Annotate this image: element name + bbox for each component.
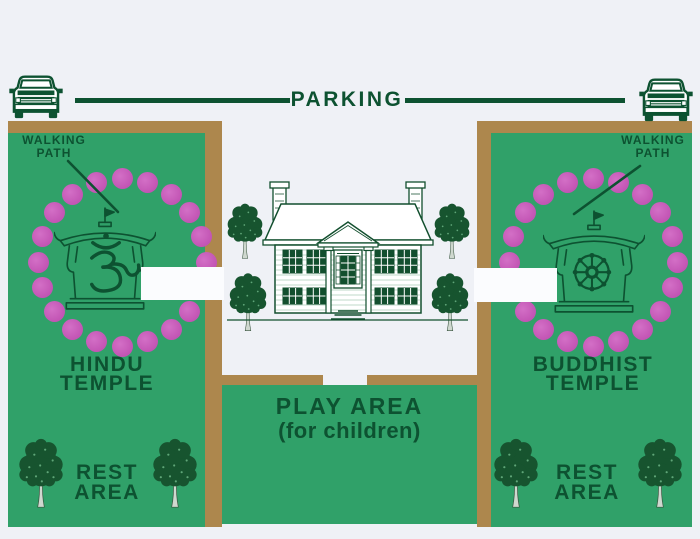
house-icon: [225, 180, 470, 325]
hindu-temple-title: HINDU TEMPLE: [27, 355, 187, 393]
play-area-subtitle: (for children): [222, 419, 477, 443]
car-icon: [638, 76, 694, 122]
car-icon: [8, 73, 64, 119]
parking-label: PARKING: [272, 88, 422, 112]
hindu-temple-access-path: [141, 267, 224, 300]
walking-path-label-line: PATH: [10, 147, 98, 160]
hindu-walking-path-label: WALKING PATH: [10, 134, 98, 160]
rest-area-line: REST: [517, 463, 657, 483]
hindu-rest-area-label: REST AREA: [37, 463, 177, 503]
parking-divider-left: [75, 98, 290, 103]
walking-path-label-line: PATH: [608, 147, 698, 160]
pointer-line: [68, 161, 118, 212]
play-area-title: PLAY AREA: [222, 394, 477, 419]
parking-divider-right: [405, 98, 625, 103]
pointer-line: [574, 166, 640, 214]
buddhist-walking-path-label: WALKING PATH: [608, 134, 698, 160]
zone-title-line: TEMPLE: [27, 374, 187, 393]
rest-area-line: AREA: [37, 483, 177, 503]
site-plan-diagram: PARKING WALKING PATH WALKING PATH HINDU …: [0, 0, 700, 539]
buddhist-rest-area-label: REST AREA: [517, 463, 657, 503]
rest-area-line: AREA: [517, 483, 657, 503]
rest-area-line: REST: [37, 463, 177, 483]
buddhist-temple-title: BUDDHIST TEMPLE: [513, 355, 673, 393]
play-area-label: PLAY AREA (for children): [222, 394, 477, 443]
buddhist-temple-access-path: [474, 268, 557, 302]
zone-title-line: TEMPLE: [513, 374, 673, 393]
